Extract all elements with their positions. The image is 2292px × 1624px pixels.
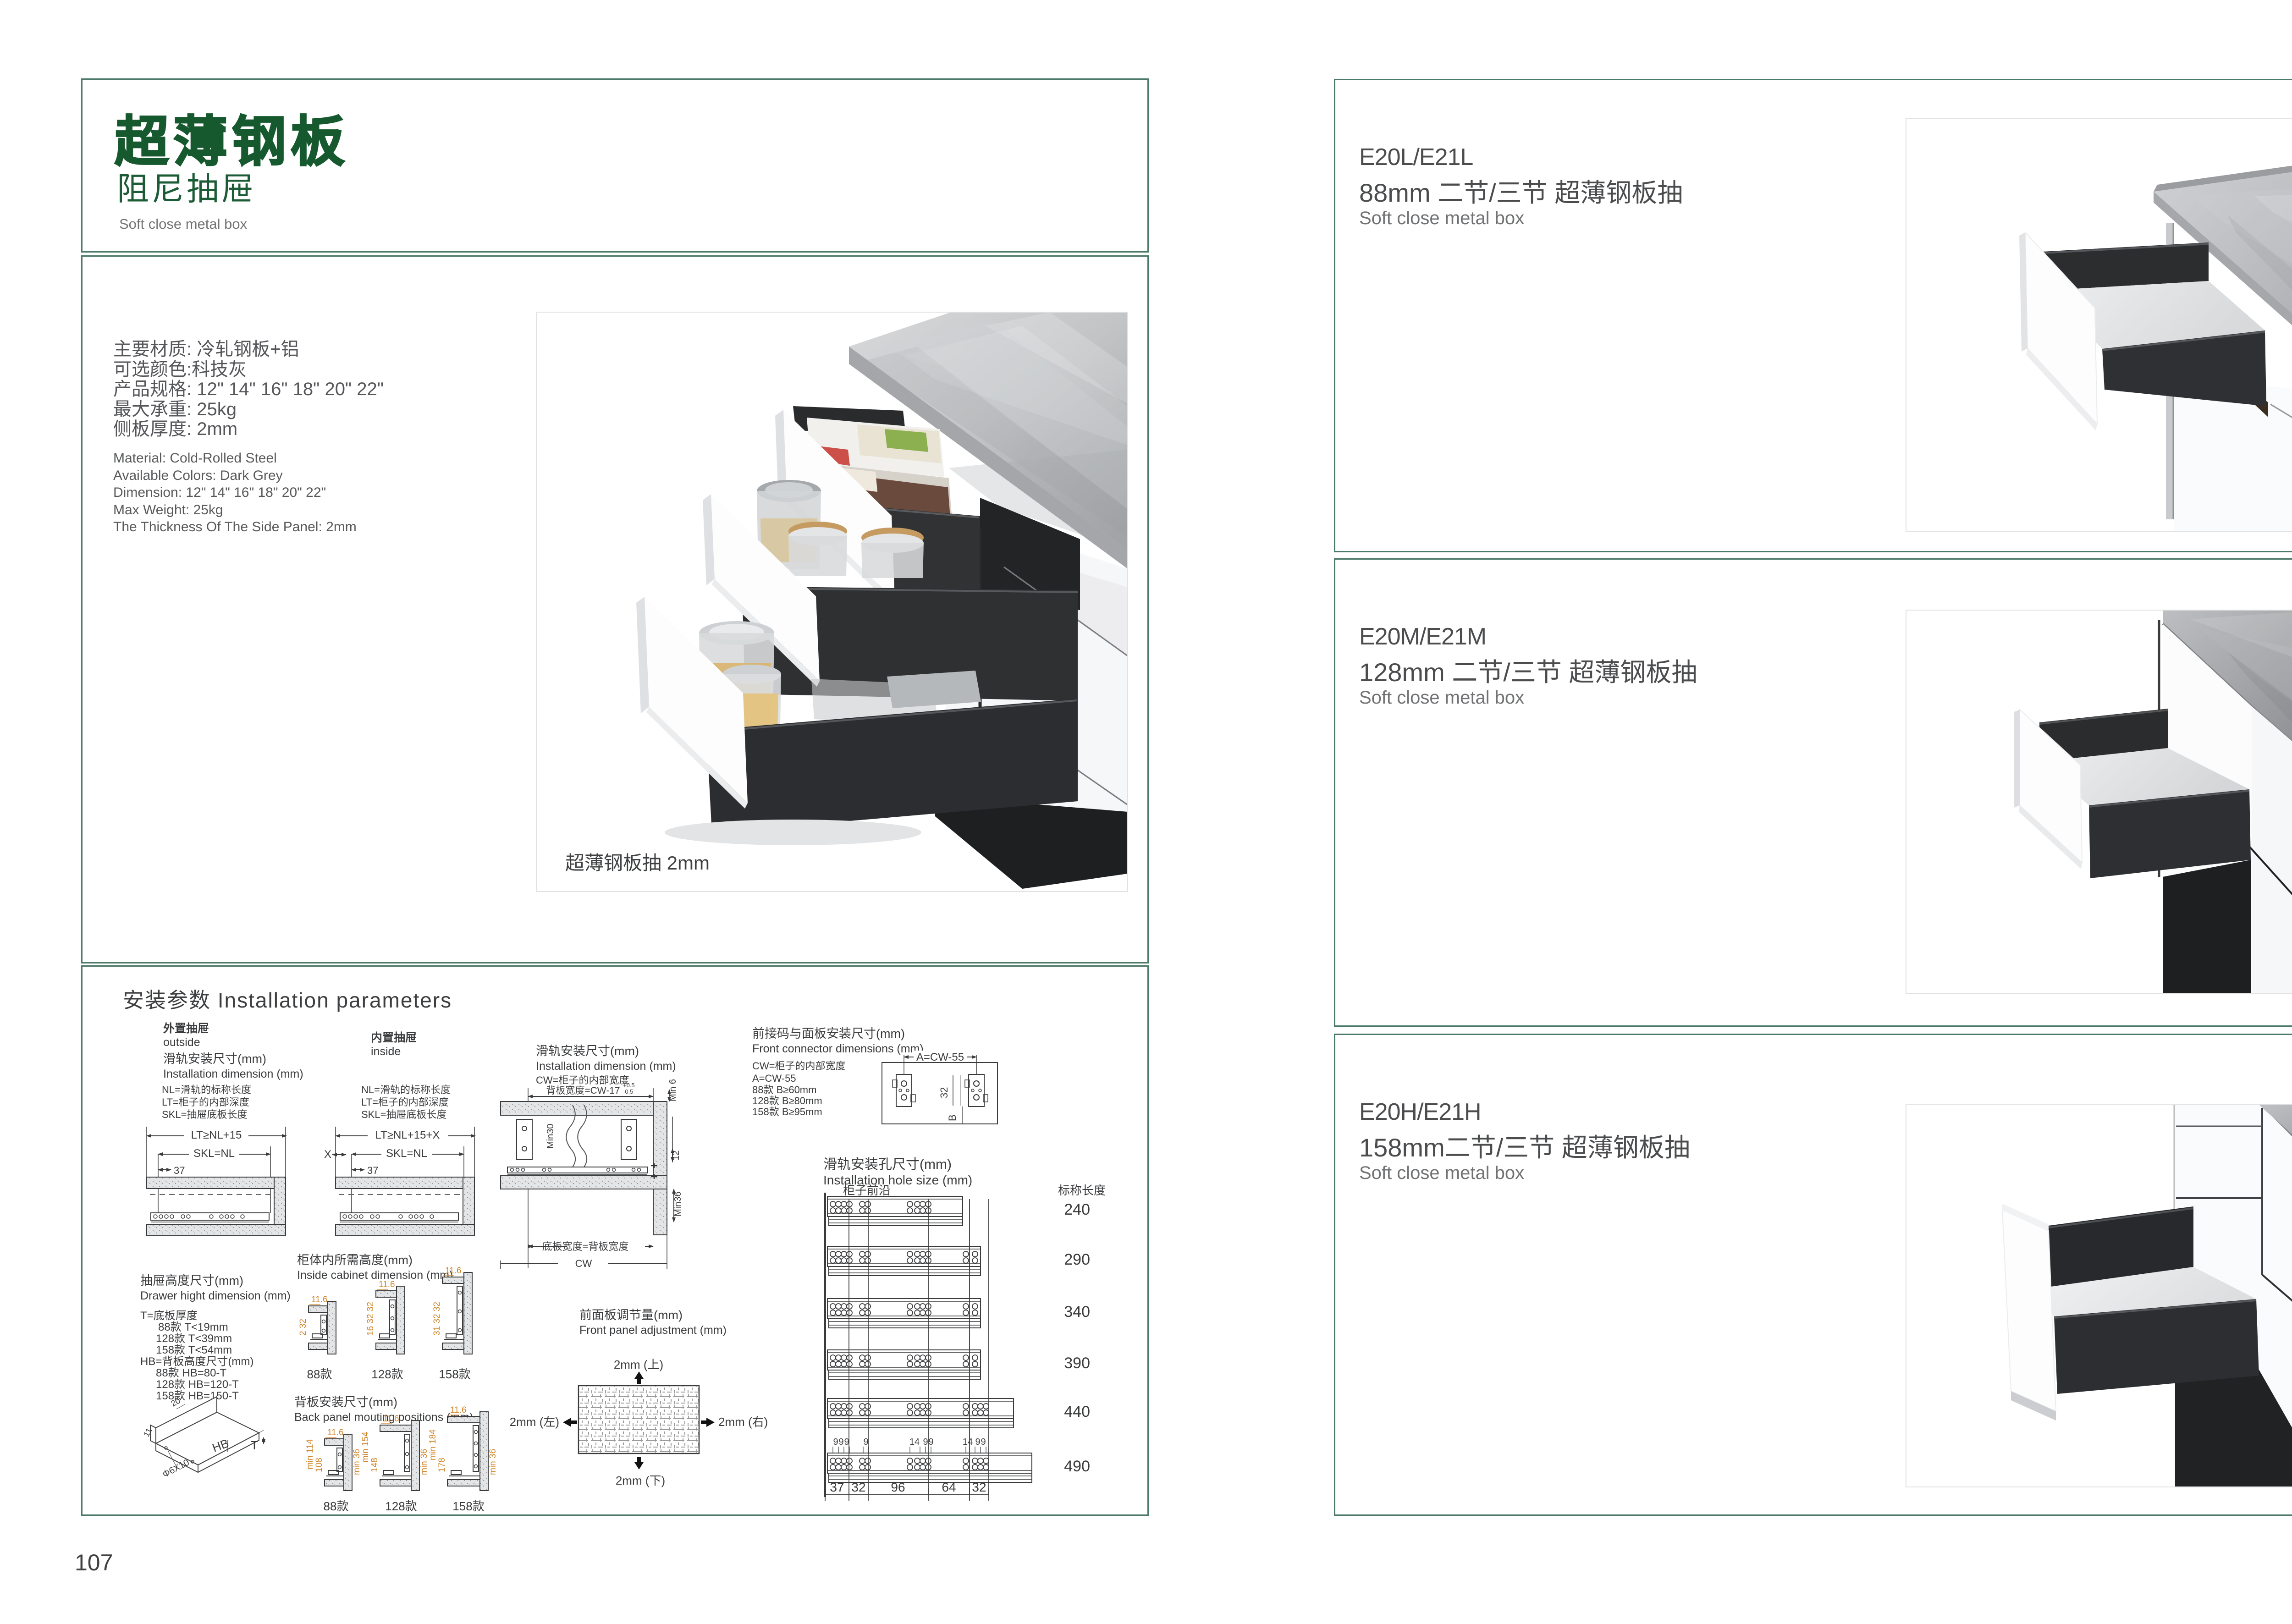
svg-text:128款 T<39mm: 128款 T<39mm: [156, 1332, 232, 1345]
svg-text:290: 290: [1064, 1251, 1090, 1268]
svg-text:11.6: 11.6: [383, 1414, 399, 1424]
svg-text:9: 9: [833, 1437, 838, 1447]
svg-text:158款 HB=150-T: 158款 HB=150-T: [156, 1390, 239, 1402]
svg-text:37: 37: [830, 1480, 844, 1494]
svg-text:Min36: Min36: [673, 1192, 683, 1217]
svg-text:Installation dimension (mm): Installation dimension (mm): [163, 1068, 303, 1080]
svg-text:T=底板厚度: T=底板厚度: [140, 1310, 198, 1322]
svg-text:2 32: 2 32: [298, 1319, 308, 1336]
svg-text:Front panel adjustment (mm): Front panel adjustment (mm): [579, 1324, 727, 1337]
svg-text:NL=滑轨的标称长度: NL=滑轨的标称长度: [361, 1084, 451, 1096]
svg-text:490: 490: [1064, 1458, 1090, 1475]
svg-text:12: 12: [671, 1151, 681, 1161]
svg-text:11.6: 11.6: [445, 1266, 462, 1276]
svg-text:内置抽屉: 内置抽屉: [371, 1031, 417, 1044]
svg-text:+0.5: +0.5: [623, 1082, 635, 1089]
svg-text:128款 HB=120-T: 128款 HB=120-T: [156, 1378, 239, 1391]
svg-text:min 184: min 184: [428, 1429, 438, 1460]
svg-text:11.6: 11.6: [379, 1280, 395, 1289]
svg-text:滑轨安装尺寸(mm): 滑轨安装尺寸(mm): [163, 1052, 266, 1066]
svg-text:9: 9: [923, 1437, 928, 1447]
svg-text:Inside cabinet dimension (mm): Inside cabinet dimension (mm): [297, 1269, 453, 1282]
svg-text:SKL=抽屉底板长度: SKL=抽屉底板长度: [361, 1109, 446, 1120]
svg-text:88款 HB=80-T: 88款 HB=80-T: [156, 1367, 226, 1379]
svg-text:超薄钢板抽 2mm: 超薄钢板抽 2mm: [565, 852, 710, 874]
svg-text:9: 9: [838, 1437, 843, 1447]
svg-text:148: 148: [370, 1458, 380, 1472]
svg-text:HB=背板高度尺寸(mm): HB=背板高度尺寸(mm): [140, 1355, 253, 1368]
svg-text:LT=柜子的内部深度: LT=柜子的内部深度: [162, 1096, 249, 1108]
svg-text:32: 32: [938, 1087, 950, 1098]
svg-text:滑轨安装尺寸(mm): 滑轨安装尺寸(mm): [536, 1044, 639, 1058]
svg-text:16 32 32: 16 32 32: [366, 1302, 375, 1336]
svg-text:340: 340: [1064, 1303, 1090, 1321]
svg-text:A=CW-55: A=CW-55: [916, 1051, 964, 1063]
svg-text:178: 178: [437, 1458, 447, 1472]
svg-text:14: 14: [963, 1437, 973, 1447]
svg-text:32: 32: [851, 1480, 865, 1494]
svg-text:底板宽度=背板宽度: 底板宽度=背板宽度: [542, 1241, 629, 1252]
svg-text:outside: outside: [163, 1036, 200, 1049]
svg-text:9: 9: [981, 1437, 986, 1447]
svg-text:14: 14: [909, 1437, 920, 1447]
svg-text:31 32 32: 31 32 32: [432, 1302, 442, 1336]
svg-text:滑轨安装孔尺寸(mm): 滑轨安装孔尺寸(mm): [823, 1157, 952, 1172]
svg-text:CW=柜子的内部宽度: CW=柜子的内部宽度: [752, 1060, 846, 1072]
svg-text:128款: 128款: [385, 1499, 417, 1513]
svg-text:11.6: 11.6: [450, 1405, 467, 1415]
svg-text:240: 240: [1064, 1201, 1090, 1218]
svg-text:11.6: 11.6: [311, 1295, 328, 1305]
svg-text:64: 64: [942, 1480, 956, 1494]
svg-text:158款 T<54mm: 158款 T<54mm: [156, 1344, 232, 1356]
svg-text:9: 9: [975, 1437, 980, 1447]
svg-text:Installation dimension (mm): Installation dimension (mm): [536, 1060, 676, 1073]
svg-text:SKL=NL: SKL=NL: [386, 1147, 427, 1160]
svg-text:37: 37: [367, 1165, 378, 1176]
svg-text:SKL=抽屉底板长度: SKL=抽屉底板长度: [162, 1109, 247, 1120]
svg-text:A=CW-55: A=CW-55: [752, 1073, 796, 1084]
svg-text:390: 390: [1064, 1354, 1090, 1372]
svg-text:背板宽度=CW-17: 背板宽度=CW-17: [546, 1085, 620, 1096]
svg-text:37: 37: [174, 1165, 185, 1176]
svg-text:T: T: [251, 1438, 258, 1452]
svg-text:2mm (下): 2mm (下): [616, 1474, 665, 1487]
svg-text:2mm (上): 2mm (上): [614, 1358, 663, 1371]
svg-text:108: 108: [314, 1458, 324, 1472]
svg-text:LT≥NL+15+X: LT≥NL+15+X: [375, 1129, 440, 1141]
svg-text:Front connector dimensions (m: Front connector dimensions (mm): [752, 1042, 924, 1055]
svg-text:158款 B≥95mm: 158款 B≥95mm: [752, 1106, 822, 1118]
svg-text:2mm (右): 2mm (右): [718, 1415, 768, 1429]
svg-text:标称长度: 标称长度: [1058, 1184, 1106, 1197]
svg-text:CW=柜子的内部宽度: CW=柜子的内部宽度: [536, 1074, 629, 1086]
svg-text:128款: 128款: [371, 1367, 403, 1381]
svg-text:440: 440: [1064, 1403, 1090, 1420]
svg-text:min 36: min 36: [352, 1449, 362, 1475]
svg-text:NL=滑轨的标称长度: NL=滑轨的标称长度: [162, 1084, 251, 1096]
svg-text:CW: CW: [575, 1258, 592, 1269]
svg-text:柜体内所需高度(mm): 柜体内所需高度(mm): [297, 1253, 413, 1267]
svg-text:min 154: min 154: [361, 1431, 370, 1463]
svg-text:96: 96: [891, 1480, 905, 1494]
svg-text:88款 B≥60mm: 88款 B≥60mm: [752, 1084, 816, 1096]
svg-text:128款 B≥80mm: 128款 B≥80mm: [752, 1095, 822, 1107]
svg-text:88款: 88款: [324, 1499, 349, 1513]
svg-text:min 36: min 36: [419, 1449, 429, 1475]
svg-text:min 36: min 36: [488, 1449, 498, 1475]
svg-text:X: X: [324, 1148, 331, 1161]
svg-text:32: 32: [972, 1480, 986, 1494]
svg-text:Min 6: Min 6: [668, 1079, 678, 1101]
svg-text:背板安装尺寸(mm): 背板安装尺寸(mm): [294, 1395, 397, 1409]
svg-text:LT≥NL+15: LT≥NL+15: [191, 1129, 242, 1141]
svg-text:B: B: [947, 1114, 958, 1121]
svg-text:前面板调节量(mm): 前面板调节量(mm): [579, 1308, 683, 1322]
svg-text:LT=柜子的内部深度: LT=柜子的内部深度: [361, 1096, 449, 1108]
svg-text:抽屉高度尺寸(mm): 抽屉高度尺寸(mm): [140, 1274, 243, 1288]
svg-text:inside: inside: [371, 1045, 401, 1058]
svg-text:外置抽屉: 外置抽屉: [163, 1022, 209, 1035]
svg-text:安装参数 Installation parameters: 安装参数 Installation parameters: [123, 988, 452, 1012]
svg-text:Min30: Min30: [545, 1124, 556, 1149]
svg-text:88款 T<19mm: 88款 T<19mm: [158, 1321, 228, 1333]
svg-text:SKL=NL: SKL=NL: [193, 1147, 235, 1160]
svg-text:min 114: min 114: [305, 1439, 315, 1470]
svg-text:11.6: 11.6: [327, 1428, 344, 1437]
svg-text:88款: 88款: [307, 1367, 332, 1381]
svg-text:9: 9: [863, 1437, 868, 1447]
svg-text:158款: 158款: [439, 1367, 470, 1381]
svg-text:柜子前沿: 柜子前沿: [843, 1184, 891, 1197]
svg-text:9: 9: [928, 1437, 933, 1447]
svg-text:9: 9: [844, 1437, 849, 1447]
svg-text:-0.5: -0.5: [623, 1088, 633, 1095]
svg-text:前接码与面板安装尺寸(mm): 前接码与面板安装尺寸(mm): [752, 1027, 905, 1040]
svg-text:Drawer hight dimension (mm): Drawer hight dimension (mm): [140, 1289, 291, 1302]
svg-text:2mm (左): 2mm (左): [510, 1415, 559, 1429]
svg-text:158款: 158款: [452, 1499, 484, 1513]
